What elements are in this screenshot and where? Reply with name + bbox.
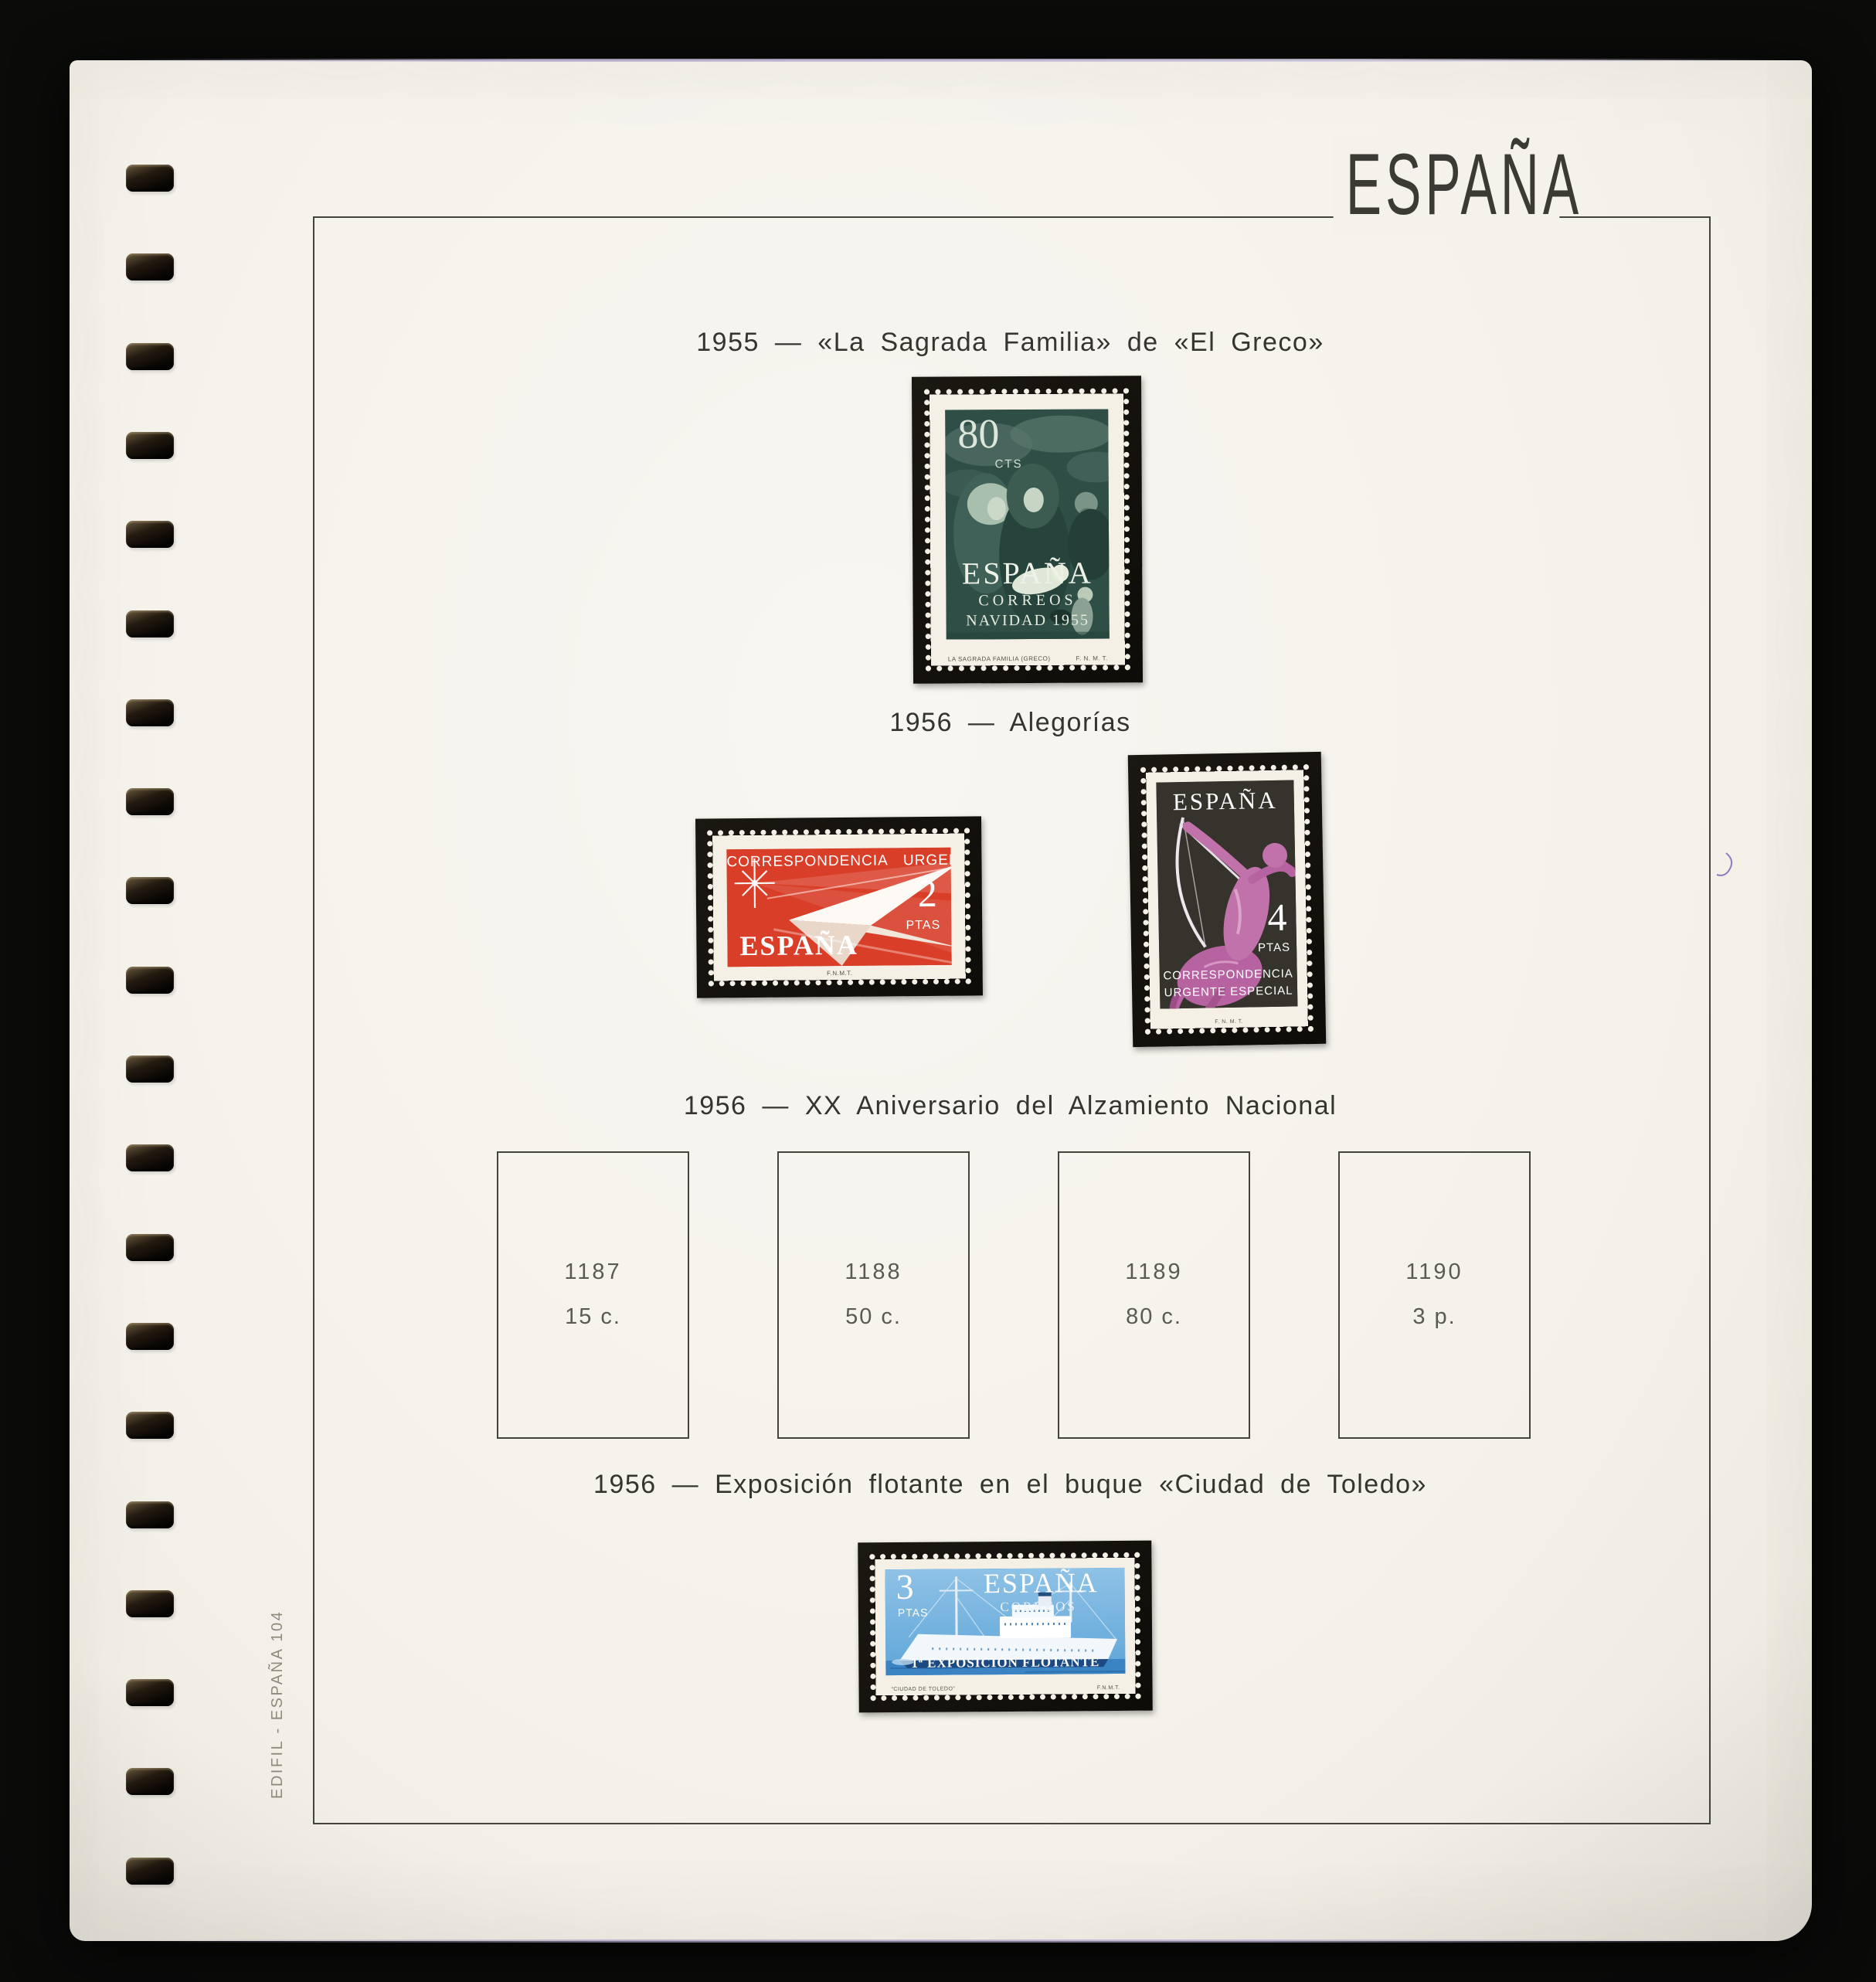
catalog-number: 1190 [1340,1260,1529,1285]
stamp-especial-imprint: F. N. M. T. [1215,1019,1243,1025]
binder-hole [126,253,174,280]
binder-hole [126,165,174,192]
stamp-urgente: CORRESPONDENCIA URGENTE 2 PTAS ESPAÑA F.… [707,828,971,987]
stamp-mount-navidad: 80 CTS ESPAÑA CORREOS NAVIDAD 1955 LA SA… [912,376,1143,684]
stamp-navidad-series: NAVIDAD 1955 [946,611,1110,630]
stamp-flotante-design: 3 PTAS ESPAÑA CORREOS 1ª EXPOSICIÓN FLOT… [885,1568,1125,1675]
stamp-urgente-unit: PTAS [906,919,941,933]
stamp-flotante-value: 3 [896,1568,913,1607]
edition-label: EDIFIL - ESPAÑA 104 [269,1652,291,1799]
stamp-flotante-correos: CORREOS [1000,1599,1077,1615]
stamp-flotante-series: 1ª EXPOSICIÓN FLOTANTE [885,1654,1125,1671]
pen-mark [1715,850,1735,881]
stamp-mount-urgente: CORRESPONDENCIA URGENTE 2 PTAS ESPAÑA F.… [695,816,983,998]
binder-hole [126,1768,174,1795]
section-heading-alegorias: 1956 — Alegorías [313,708,1708,738]
stamp-especial-series-line1: CORRESPONDENCIA [1160,967,1297,982]
album-page: ESPAÑA 1955 — «La Sagrada Familia» de «E… [70,60,1812,1941]
stamp-especial-series-line2: URGENTE ESPECIAL [1160,984,1297,999]
binder-hole [126,1412,174,1439]
photo-background: ESPAÑA 1955 — «La Sagrada Familia» de «E… [0,0,1876,1982]
face-value: 50 c. [779,1304,968,1330]
binder-hole [126,1590,174,1617]
face-value: 80 c. [1059,1304,1249,1330]
face-value: 15 c. [498,1304,688,1330]
stamp-placeholder-1190: 1190 3 p. [1338,1151,1531,1439]
stamp-flotante-country: ESPAÑA [984,1568,1099,1600]
binder-hole [126,1679,174,1706]
stamp-navidad-value: 80 [957,410,999,457]
binder-hole [126,343,174,370]
binder-hole [126,610,174,637]
catalog-number: 1189 [1059,1260,1249,1285]
stamp-navidad-design: 80 CTS ESPAÑA CORREOS NAVIDAD 1955 [945,409,1110,639]
stamp-flotante-unit: PTAS [898,1606,929,1619]
face-value: 3 p. [1340,1304,1529,1330]
binder-hole [126,1056,174,1083]
stamp-navidad: 80 CTS ESPAÑA CORREOS NAVIDAD 1955 LA SA… [924,388,1130,671]
stamp-placeholder-1187: 1187 15 c. [497,1151,689,1439]
stamp-flotante-imprint-left: “CIUDAD DE TOLEDO” [892,1686,956,1692]
catalog-number: 1188 [779,1260,968,1285]
stamp-navidad-country: ESPAÑA [946,554,1109,591]
stamp-navidad-unit: CTS [995,457,1023,471]
binder-hole [126,1501,174,1528]
stamp-navidad-imprint-right: F. N. M. T. [1076,654,1107,661]
stamp-placeholder-1188: 1188 50 c. [777,1151,970,1439]
stamp-especial: ESPAÑA 4 PTAS CORRESPONDENCIA URGENTE ES… [1140,764,1314,1035]
stamp-flotante-imprint-right: F.N.M.T. [1097,1685,1120,1691]
page-title: ESPAÑA [1334,134,1560,235]
stamp-urgente-country: ESPAÑA [739,929,858,962]
stamp-navidad-imprint-left: LA SAGRADA FAMILIA (GRECO) [948,655,1051,663]
stamp-urgente-header: CORRESPONDENCIA URGENTE [726,852,950,872]
stamp-urgente-design: CORRESPONDENCIA URGENTE 2 PTAS ESPAÑA [726,848,951,967]
binder-hole [126,699,174,726]
binder-hole [126,788,174,815]
section-heading-alzamiento: 1956 — XX Aniversario del Alzamiento Nac… [313,1091,1708,1121]
binder-hole [126,877,174,904]
stamp-especial-design: ESPAÑA 4 PTAS CORRESPONDENCIA URGENTE ES… [1156,780,1297,1008]
stamp-flotante: 3 PTAS ESPAÑA CORREOS 1ª EXPOSICIÓN FLOT… [869,1552,1140,1701]
binder-hole [126,1323,174,1350]
stamp-mount-flotante: 3 PTAS ESPAÑA CORREOS 1ª EXPOSICIÓN FLOT… [858,1541,1153,1713]
binder-hole [126,967,174,994]
binder-hole [126,521,174,548]
stamp-especial-value: 4 [1267,895,1287,940]
binder-hole [126,1144,174,1171]
stamp-navidad-correos: CORREOS [946,591,1109,610]
section-heading-sagrada-familia: 1955 — «La Sagrada Familia» de «El Greco… [313,328,1708,358]
stamp-especial-unit: PTAS [1258,941,1290,955]
stamp-urgente-imprint: F.N.M.T. [827,970,852,977]
stamp-especial-country: ESPAÑA [1156,786,1294,816]
binder-hole [126,1234,174,1261]
stamp-mount-especial: ESPAÑA 4 PTAS CORRESPONDENCIA URGENTE ES… [1128,752,1327,1047]
stamp-urgente-value: 2 [918,871,938,916]
stamp-placeholder-1189: 1189 80 c. [1058,1151,1250,1439]
section-heading-exposicion-flotante: 1956 — Exposición flotante en el buque «… [313,1470,1708,1500]
binder-hole [126,432,174,459]
binder-hole [126,1858,174,1885]
catalog-number: 1187 [498,1260,688,1285]
